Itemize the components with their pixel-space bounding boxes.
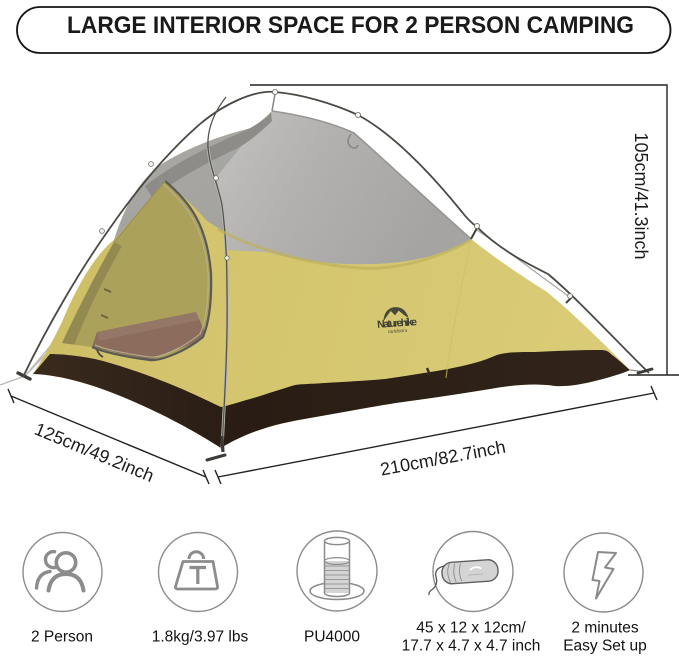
svg-text:45 x 12 x 12cm/: 45 x 12 x 12cm/ <box>416 620 526 637</box>
svg-text:2 Person: 2 Person <box>31 629 93 646</box>
svg-text:2 minutes: 2 minutes <box>571 620 638 637</box>
svg-text:PU4000: PU4000 <box>304 629 360 646</box>
svg-text:1.8kg/3.97 lbs: 1.8kg/3.97 lbs <box>152 629 249 646</box>
svg-text:LARGE INTERIOR SPACE FOR 2 PER: LARGE INTERIOR SPACE FOR 2 PERSON CAMPIN… <box>67 12 634 39</box>
svg-text:125cm/49.2inch: 125cm/49.2inch <box>32 419 157 486</box>
svg-text:17.7 x 4.7 x 4.7 inch: 17.7 x 4.7 x 4.7 inch <box>402 638 541 655</box>
svg-text:105cm/41.3inch: 105cm/41.3inch <box>631 132 651 259</box>
svg-text:Easy Set up: Easy Set up <box>563 638 647 655</box>
svg-text:210cm/82.7inch: 210cm/82.7inch <box>379 437 508 480</box>
